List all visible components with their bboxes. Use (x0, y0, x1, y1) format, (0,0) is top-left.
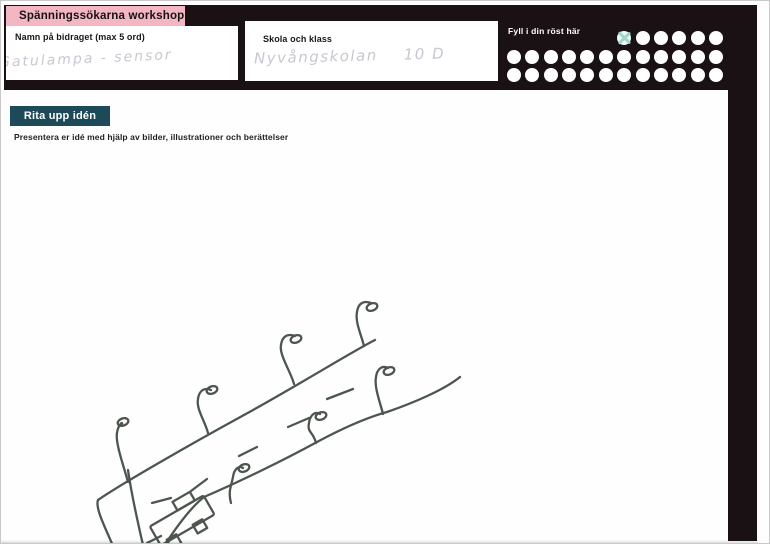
street-lamp-post (117, 423, 128, 482)
road-dash-stroke (239, 447, 257, 456)
street-lamp-post (198, 389, 211, 433)
scanned-worksheet: Spänningssökarna workshop Namn på bidrag… (0, 0, 770, 544)
road-edge-stroke (128, 470, 143, 544)
street-lamp-head (366, 302, 379, 313)
scan-shadow (1, 540, 758, 543)
street-lamp-head (117, 417, 130, 428)
street-lamp-post (309, 413, 320, 443)
road-dash-stroke (327, 389, 353, 399)
sketch-strokes (97, 302, 460, 544)
road-dash-stroke (191, 479, 207, 491)
street-lamp-post (357, 302, 371, 346)
road-edge-stroke (97, 340, 375, 544)
car-wheel (193, 519, 208, 533)
hand-drawn-sketch (1, 1, 770, 544)
road-dash-stroke (152, 498, 171, 503)
road-dash-stroke (288, 418, 309, 427)
